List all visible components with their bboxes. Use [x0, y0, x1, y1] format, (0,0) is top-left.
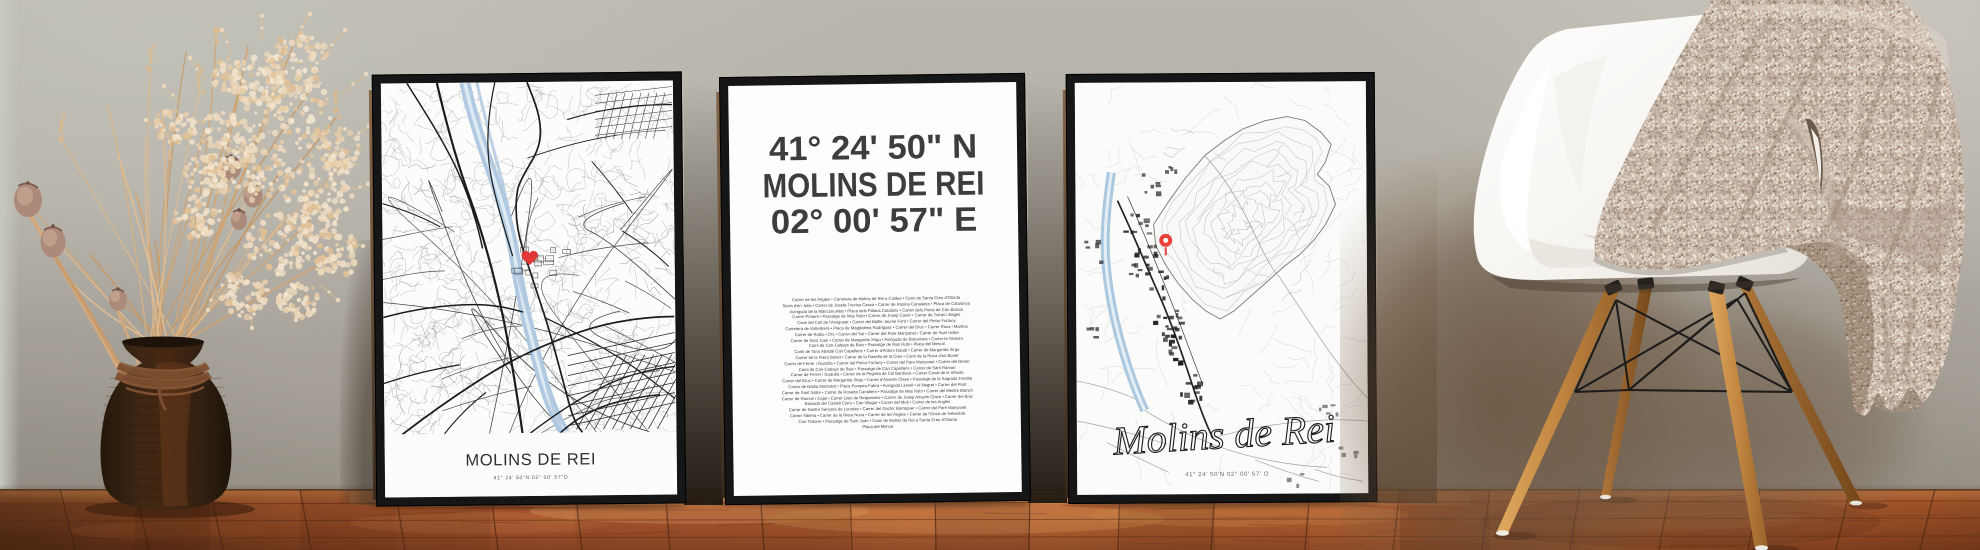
svg-text:MOLINS DE REI: MOLINS DE REI	[465, 450, 596, 469]
svg-text:41° 24' 50"N 02° 00' 57"O: 41° 24' 50"N 02° 00' 57"O	[494, 475, 569, 482]
svg-text:41° 24' 50'N 02° 00' 57' O: 41° 24' 50'N 02° 00' 57' O	[1185, 472, 1269, 479]
